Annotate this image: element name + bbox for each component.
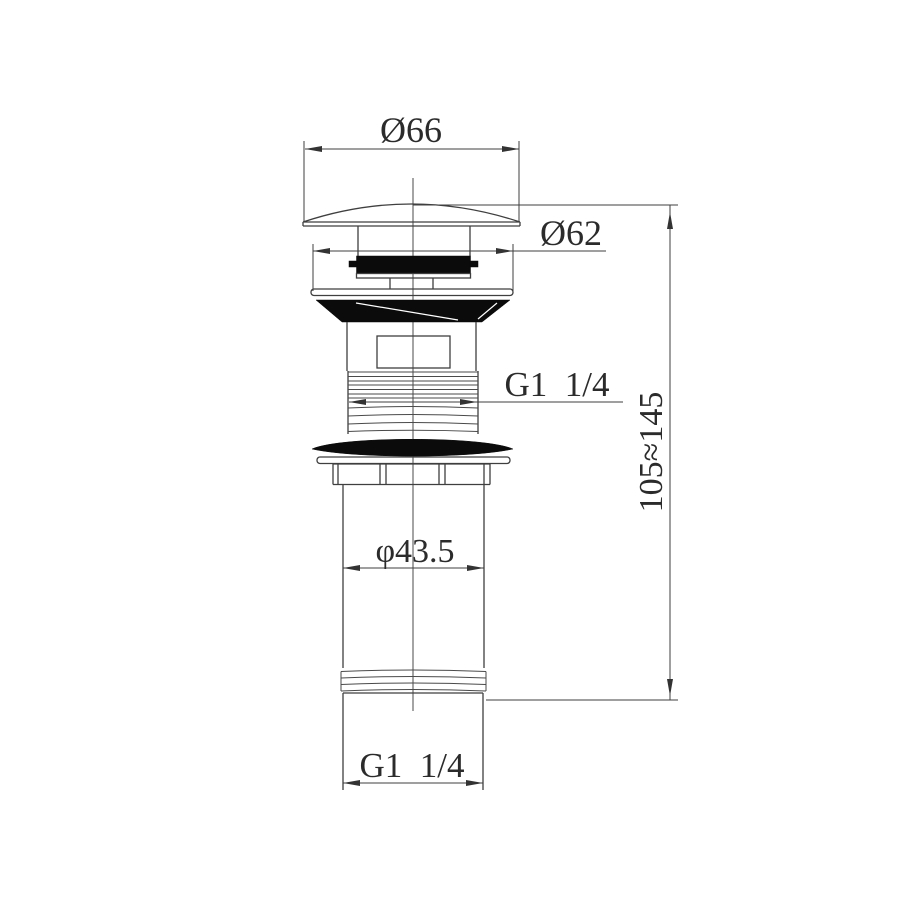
dim-pipe-diameter: φ43.5 [343, 533, 484, 571]
dim-cover-diameter: Ø62 [313, 213, 606, 291]
dimension-label-top-thread: G1 1/4 [505, 365, 610, 404]
technical-drawing: Ø66 Ø62 G1 1/4 [0, 0, 900, 900]
cone-washer [316, 300, 510, 322]
dimension-label-pipe-diameter: φ43.5 [375, 533, 454, 570]
drawing-canvas: Ø66 Ø62 G1 1/4 [0, 0, 900, 900]
dimension-label-cover-diameter: Ø62 [540, 213, 602, 253]
dome-cap [303, 204, 520, 226]
locknut [333, 464, 490, 485]
dimension-label-overall-height: 105≈145 [633, 392, 670, 513]
dimension-label-cap-diameter: Ø66 [380, 110, 442, 150]
top-flange-plate [311, 289, 513, 296]
seal-pin-right [470, 261, 478, 267]
part-outline [303, 204, 520, 790]
dim-bottom-thread: G1 1/4 [343, 746, 483, 786]
drain-body [347, 322, 476, 371]
rubber-gasket [312, 439, 513, 456]
dimension-label-bottom-thread: G1 1/4 [360, 746, 465, 785]
seal-pin-left [349, 261, 357, 267]
